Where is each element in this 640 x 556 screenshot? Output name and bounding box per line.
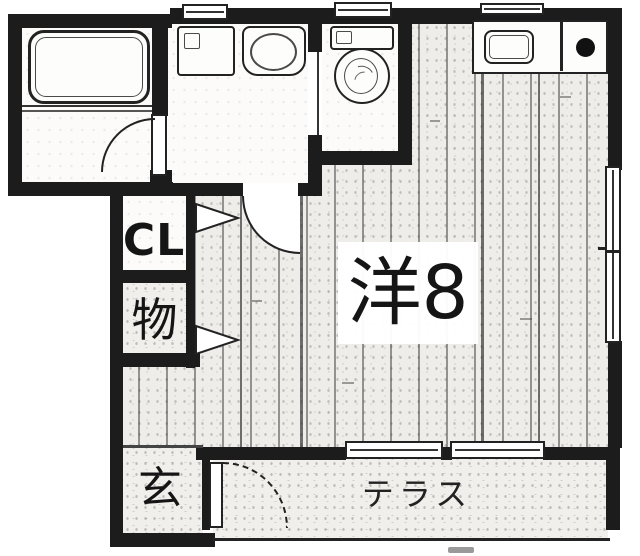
wall [8,14,172,28]
closet-door-icon [194,198,242,358]
kitchen-sink [484,30,534,64]
wall [110,270,195,283]
toilet-tank [330,26,394,50]
floor-plan: 洋8 CL 物 玄 テラス [0,0,640,556]
toilet-door-panel [317,52,319,135]
kitchen-sink-inner [489,35,529,59]
floor-joint-tick [342,382,354,384]
window [182,4,228,20]
toilet-tank-basin [336,31,352,44]
washroom-door-opening [243,183,298,196]
floor-board-line [538,24,540,447]
main-room-label: 洋8 [338,242,478,344]
bathtub-inner-line [35,37,143,97]
vanity-sink [242,26,306,76]
wall [543,447,608,460]
bathtub-deck-line [22,105,152,107]
entrance-step-line [123,445,203,448]
bathtub-deck-line [22,110,152,112]
counter-divider [560,22,563,71]
floor-board-line [300,196,303,447]
wall [122,183,243,196]
terrace-label: テラス [352,472,482,516]
wall [308,151,412,165]
wall [110,533,215,547]
wall [308,135,322,196]
window-pane-line [612,170,614,339]
window-sash-divider [607,250,619,253]
scan-artifact [448,547,474,553]
wall [8,14,22,196]
window-pane-line [186,11,224,13]
storage-label: 物 [123,292,186,348]
closet-label: CL [120,214,188,268]
toilet-bowl [334,48,390,104]
terrace-edge-line [213,538,610,541]
wall [606,448,620,530]
window-pane-line [484,8,540,10]
window-mullion-tick [598,247,606,250]
wall [152,24,168,116]
window [334,2,392,18]
terrace-sliding-door [450,441,545,459]
sliding-window [605,166,621,343]
bathtub [28,30,150,104]
entrance-label: 玄 [128,460,192,518]
window-pane-line [350,449,438,451]
toilet-door-opening [310,52,322,135]
window-pane-line [338,9,388,11]
wall [608,341,622,448]
floor-joint-tick [560,96,571,98]
floor-board-line [481,24,484,447]
floor-joint-tick [252,300,262,302]
window-pane-line [455,449,540,451]
window [480,3,544,15]
wall [196,447,346,460]
floor-joint-tick [520,318,532,320]
vanity-bowl [250,33,297,71]
terrace-sliding-door [345,441,443,459]
wall [308,8,322,52]
entrance-door-leaf [209,462,223,528]
floor-joint-tick [430,120,440,122]
wall [608,8,622,170]
stove-burner [576,38,595,57]
wall [110,353,200,367]
wall [398,24,412,154]
washing-machine-space [177,26,235,76]
kitchen-counter [472,20,608,74]
washing-machine-detail [184,33,200,49]
